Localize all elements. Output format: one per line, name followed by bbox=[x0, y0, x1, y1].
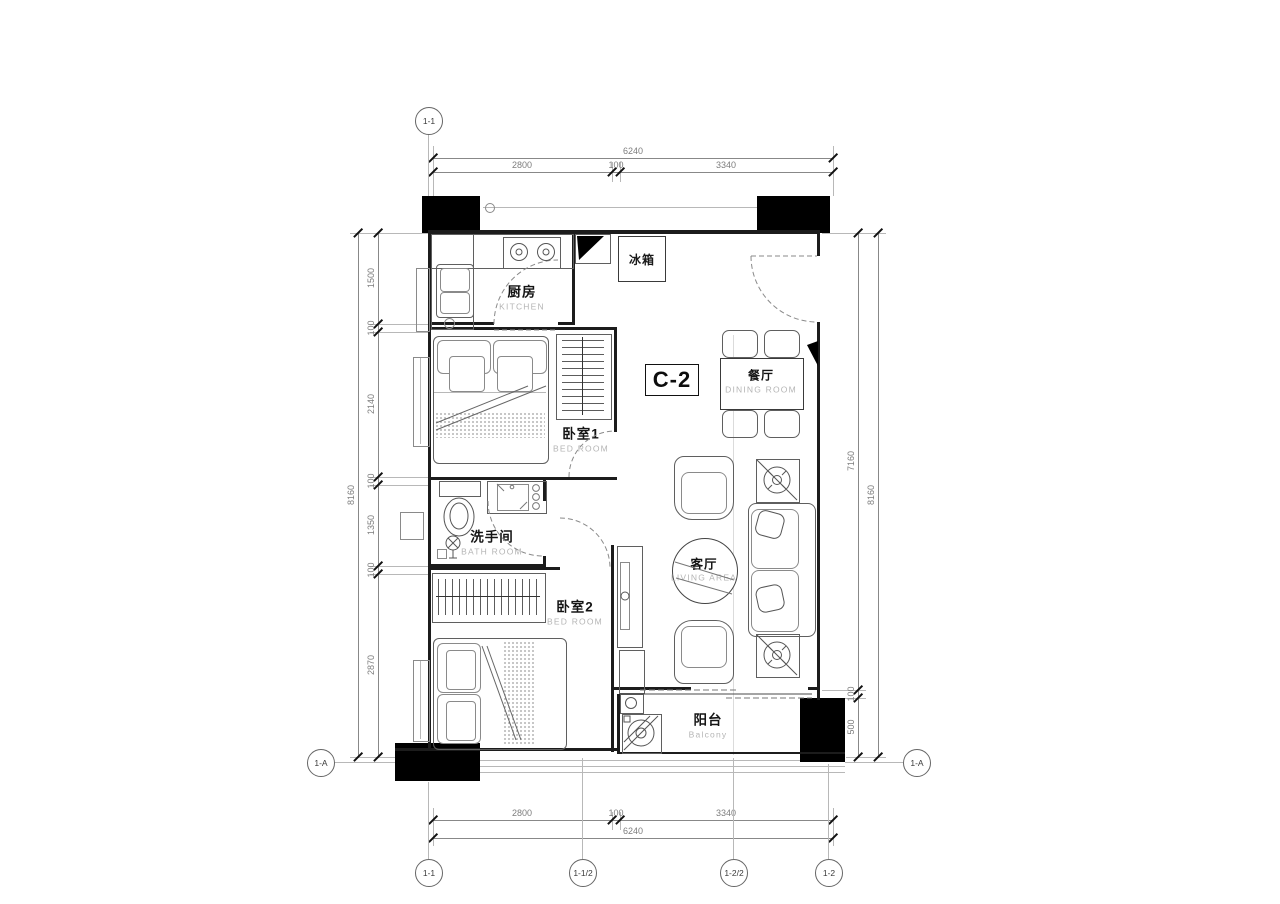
side-table-icon bbox=[756, 459, 800, 503]
bed1-blanket-dots bbox=[435, 412, 545, 438]
dim-line-bottom-total bbox=[433, 838, 833, 839]
dim-ext-line bbox=[370, 574, 430, 575]
wardrobe2-hangers bbox=[438, 579, 538, 615]
bedroom2-label: 卧室2 BED ROOM bbox=[547, 599, 603, 628]
wardrobe2-rail bbox=[436, 596, 540, 597]
dim-line-left-total bbox=[358, 233, 359, 757]
dining-label-cn: 餐厅 bbox=[725, 369, 797, 385]
wall-bedroom2-top bbox=[428, 567, 560, 570]
grid-leader-line bbox=[582, 758, 583, 859]
wall-bedroom1-bottom bbox=[428, 477, 617, 480]
dim-label: 2800 bbox=[512, 808, 532, 818]
dim-ext-line bbox=[370, 485, 430, 486]
dim-ext-line bbox=[370, 332, 430, 333]
dim-label: 6240 bbox=[623, 826, 643, 836]
armchair-seat bbox=[681, 626, 727, 668]
refrigerator-label: 冰箱 bbox=[629, 251, 655, 268]
dim-line-left-segments bbox=[378, 233, 379, 757]
dim-label: 1350 bbox=[366, 515, 376, 535]
dining-chair-icon bbox=[764, 410, 800, 438]
dim-line-top-segments bbox=[433, 172, 833, 173]
bedroom2-label-en: BED ROOM bbox=[547, 616, 603, 627]
dim-ext-line bbox=[833, 808, 834, 846]
living-label-en: LIVING AREA bbox=[671, 573, 737, 584]
bed2-pillow-small bbox=[446, 650, 476, 690]
sink-basin bbox=[440, 292, 470, 314]
bed1-pillow-small bbox=[449, 356, 485, 392]
dim-label: 2800 bbox=[512, 160, 532, 170]
dim-line-bottom-segments bbox=[433, 820, 833, 821]
dim-label: 8160 bbox=[346, 485, 356, 505]
living-label-cn: 客厅 bbox=[671, 556, 737, 572]
sofa-cushion bbox=[751, 570, 799, 632]
wall-right-lower bbox=[817, 322, 820, 700]
wardrobe1-rail bbox=[582, 337, 583, 415]
dim-line-right-segments bbox=[858, 233, 859, 757]
drain-circle bbox=[444, 318, 455, 329]
floor-drain-icon bbox=[446, 536, 460, 558]
washing-machine-icon bbox=[622, 714, 662, 754]
shaft-bathroom bbox=[400, 512, 424, 540]
dim-line-right-total bbox=[878, 233, 879, 757]
dim-ext-line bbox=[370, 566, 430, 567]
dim-label: 100 bbox=[608, 808, 623, 818]
dim-label: 7160 bbox=[846, 451, 856, 471]
bed2-blanket-dots bbox=[503, 641, 535, 745]
balcony-basin-icon bbox=[620, 694, 644, 714]
wall-living-bottom-stub bbox=[808, 687, 820, 690]
dim-label: 100 bbox=[366, 473, 376, 488]
side-table-icon bbox=[756, 634, 800, 678]
grid-marker-1-2-2: 1-2/2 bbox=[720, 859, 748, 887]
unit-label: C-2 bbox=[653, 367, 691, 393]
dim-label: 100 bbox=[846, 686, 856, 701]
dining-label: 餐厅 DINING ROOM bbox=[725, 369, 797, 396]
grid-marker-label: 1-2 bbox=[823, 868, 835, 878]
floor-plan-canvas: 6240 2800 100 3340 2800 100 3340 6240 81… bbox=[0, 0, 1280, 904]
cabinet-low-icon bbox=[619, 650, 645, 694]
wall-bedroom1-right bbox=[614, 327, 617, 432]
refrigerator: 冰箱 bbox=[618, 236, 666, 282]
dim-ext-line bbox=[846, 757, 886, 758]
bedroom1-label: 卧室1 BED ROOM bbox=[553, 426, 609, 455]
grid-marker-1-A-left: 1-A bbox=[307, 749, 335, 777]
bedroom1-label-cn: 卧室1 bbox=[553, 426, 609, 444]
dim-label: 100 bbox=[366, 320, 376, 335]
grid-marker-label: 1-A bbox=[314, 758, 327, 768]
grid-leader-line bbox=[428, 782, 429, 859]
dining-label-en: DINING ROOM bbox=[725, 384, 797, 395]
dim-label: 8160 bbox=[866, 485, 876, 505]
grid-marker-1-A-right: 1-A bbox=[903, 749, 931, 777]
dim-label: 2870 bbox=[366, 655, 376, 675]
dim-ext-line bbox=[350, 233, 430, 234]
bathroom-label: 洗手间 BATH ROOM bbox=[461, 529, 523, 558]
kitchen-label: 厨房 KITCHEN bbox=[499, 284, 545, 313]
dim-ext-line bbox=[433, 808, 434, 846]
exterior-edge-line bbox=[483, 207, 757, 208]
dim-label: 6240 bbox=[623, 146, 643, 156]
sofa-cushion bbox=[751, 509, 799, 569]
grid-marker-1-2: 1-2 bbox=[815, 859, 843, 887]
sliding-door-icon bbox=[620, 690, 812, 698]
grid-marker-label: 1-1 bbox=[423, 116, 435, 126]
drain-box bbox=[437, 549, 447, 559]
stove-icon bbox=[503, 237, 561, 269]
vanity-sink bbox=[497, 484, 529, 511]
grid-marker-label: 1-A bbox=[910, 758, 923, 768]
dim-label: 3340 bbox=[716, 160, 736, 170]
dim-label: 1500 bbox=[366, 268, 376, 288]
grid-marker-1-1-bottom: 1-1 bbox=[415, 859, 443, 887]
grid-leader-line bbox=[733, 758, 734, 859]
balcony-label-en: Balcony bbox=[689, 729, 728, 740]
balcony-label-cn: 阳台 bbox=[689, 712, 728, 730]
living-label: 客厅 LIVING AREA bbox=[671, 556, 737, 583]
dim-ext-line bbox=[370, 477, 430, 478]
bedroom2-label-cn: 卧室2 bbox=[547, 599, 603, 617]
kitchen-label-cn: 厨房 bbox=[499, 284, 545, 302]
entry-door-arc bbox=[751, 256, 817, 322]
linework-overlay bbox=[0, 0, 1280, 904]
bed2-pillow-small bbox=[446, 701, 476, 741]
dim-label: 2140 bbox=[366, 394, 376, 414]
grid-marker-label: 1-1 bbox=[423, 868, 435, 878]
wall-right-upper bbox=[817, 230, 820, 256]
bed1-blanket-line bbox=[434, 392, 546, 393]
kitchen-label-en: KITCHEN bbox=[499, 301, 545, 312]
armchair-seat bbox=[681, 472, 727, 514]
grid-marker-1-1-2: 1-1/2 bbox=[569, 859, 597, 887]
dining-chair-icon bbox=[764, 330, 800, 358]
toilet-tank bbox=[439, 481, 481, 497]
sill-line bbox=[420, 772, 845, 773]
dim-ext-line bbox=[822, 690, 866, 691]
bed1-pillow-small bbox=[497, 356, 533, 392]
window-kitchen bbox=[416, 268, 430, 332]
dim-label: 100 bbox=[608, 160, 623, 170]
window-mullion bbox=[420, 661, 421, 739]
flue-box bbox=[575, 234, 611, 264]
dim-label: 100 bbox=[366, 562, 376, 577]
grid-marker-1-1-top: 1-1 bbox=[415, 107, 443, 135]
balcony-label: 阳台 Balcony bbox=[689, 712, 728, 741]
grid-leader-line bbox=[845, 762, 903, 763]
bedroom2-door-arc bbox=[560, 518, 610, 568]
bedroom1-label-en: BED ROOM bbox=[553, 443, 609, 454]
window-bedroom1 bbox=[413, 357, 430, 447]
wardrobe1-hangers bbox=[562, 340, 604, 412]
grid-marker-label: 1-1/2 bbox=[573, 868, 592, 878]
dim-label: 500 bbox=[846, 719, 856, 734]
dining-chair-icon bbox=[722, 330, 758, 358]
grid-leader-line bbox=[428, 133, 429, 196]
sink-basin bbox=[440, 268, 470, 292]
grid-leader-line bbox=[333, 762, 395, 763]
window-mullion bbox=[420, 358, 421, 444]
tv-icon bbox=[620, 562, 630, 630]
bathroom-label-cn: 洗手间 bbox=[461, 529, 523, 547]
column-top-right bbox=[757, 196, 830, 233]
dim-line-top-total bbox=[433, 158, 833, 159]
wall-bedroom2-right bbox=[611, 545, 614, 752]
exterior-marker-circle bbox=[485, 203, 495, 213]
grid-marker-label: 1-2/2 bbox=[724, 868, 743, 878]
bathroom-label-en: BATH ROOM bbox=[461, 546, 523, 557]
column-top-left bbox=[422, 196, 480, 233]
unit-label-box: C-2 bbox=[645, 364, 699, 396]
dining-chair-icon bbox=[722, 410, 758, 438]
grid-leader-line bbox=[828, 764, 829, 859]
window-bedroom2 bbox=[413, 660, 430, 742]
